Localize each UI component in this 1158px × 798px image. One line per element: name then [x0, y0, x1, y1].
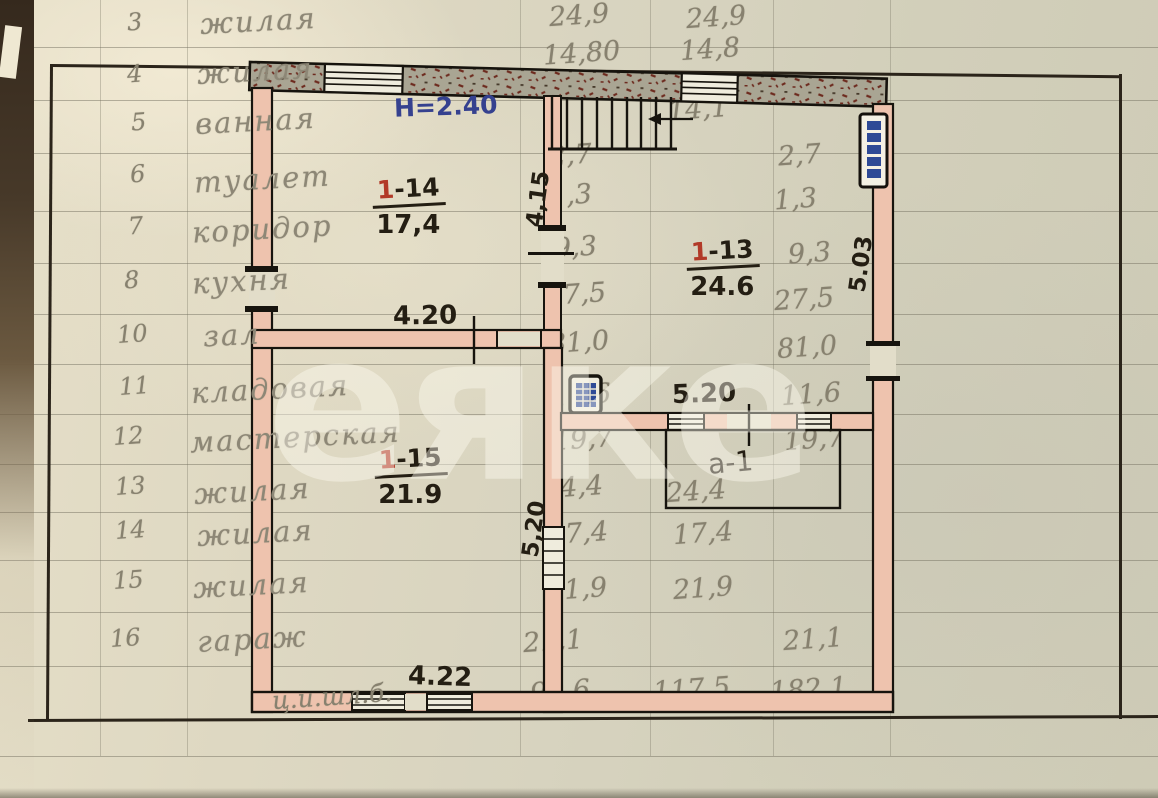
- room-name: гараж: [196, 619, 308, 659]
- dimension-label: 4.22: [407, 661, 472, 693]
- stove-icon: [570, 376, 601, 413]
- door-opening: [541, 230, 564, 284]
- window-symbol: [427, 694, 472, 710]
- porch-label: а-1: [707, 444, 755, 481]
- page-gutter-shadow: [0, 0, 34, 798]
- room-label-1-13: 1-13 24.6: [686, 236, 759, 302]
- room-area: 24.6: [686, 269, 759, 302]
- door-opening: [497, 332, 541, 346]
- room-label-1-14: 1-14 17,4: [372, 174, 445, 240]
- room-name: жилая: [196, 51, 314, 91]
- scanned-ledger-page: 3 жилая 4 жилая 5 ванная 6 туалет 7 кори…: [0, 0, 1158, 798]
- room-name: жилая: [192, 565, 310, 605]
- floor-plan-drawing: [0, 0, 1158, 798]
- radiator-icon: [860, 114, 887, 187]
- window-symbol: [668, 413, 704, 430]
- ceiling-height-note: Н=2.40: [394, 90, 499, 123]
- room-name: жилая: [193, 471, 311, 511]
- room-name: кухня: [191, 261, 291, 300]
- room-name: зал: [202, 317, 261, 354]
- room-number-suffix: -14: [394, 172, 441, 203]
- room-number-prefix: 1: [378, 445, 397, 475]
- dimension-label: 4.20: [393, 300, 458, 331]
- room-name: жилая: [199, 1, 317, 41]
- window-symbol: [681, 73, 738, 102]
- room-name: туалет: [193, 158, 331, 199]
- window-symbol: [324, 64, 403, 94]
- dimension-label: 5.20: [671, 378, 736, 410]
- door-opening: [405, 694, 427, 710]
- interior-wall-520: [561, 404, 873, 446]
- room-label-1-15: 1-15 21.9: [374, 444, 447, 510]
- scan-bottom-shadow: [0, 788, 1158, 798]
- room-area: 21.9: [374, 477, 447, 510]
- exterior-wall-right: [860, 104, 900, 710]
- staircase: [548, 97, 693, 149]
- window-symbol: [797, 413, 831, 430]
- room-area: 17,4: [372, 207, 445, 240]
- room-number-suffix: -15: [396, 442, 443, 473]
- room-number-suffix: -13: [708, 234, 755, 265]
- window-opening: [870, 346, 896, 377]
- room-name: ванная: [194, 101, 316, 141]
- room-name: жилая: [196, 513, 314, 553]
- room-number-prefix: 1: [690, 237, 709, 267]
- room-number-prefix: 1: [376, 175, 395, 205]
